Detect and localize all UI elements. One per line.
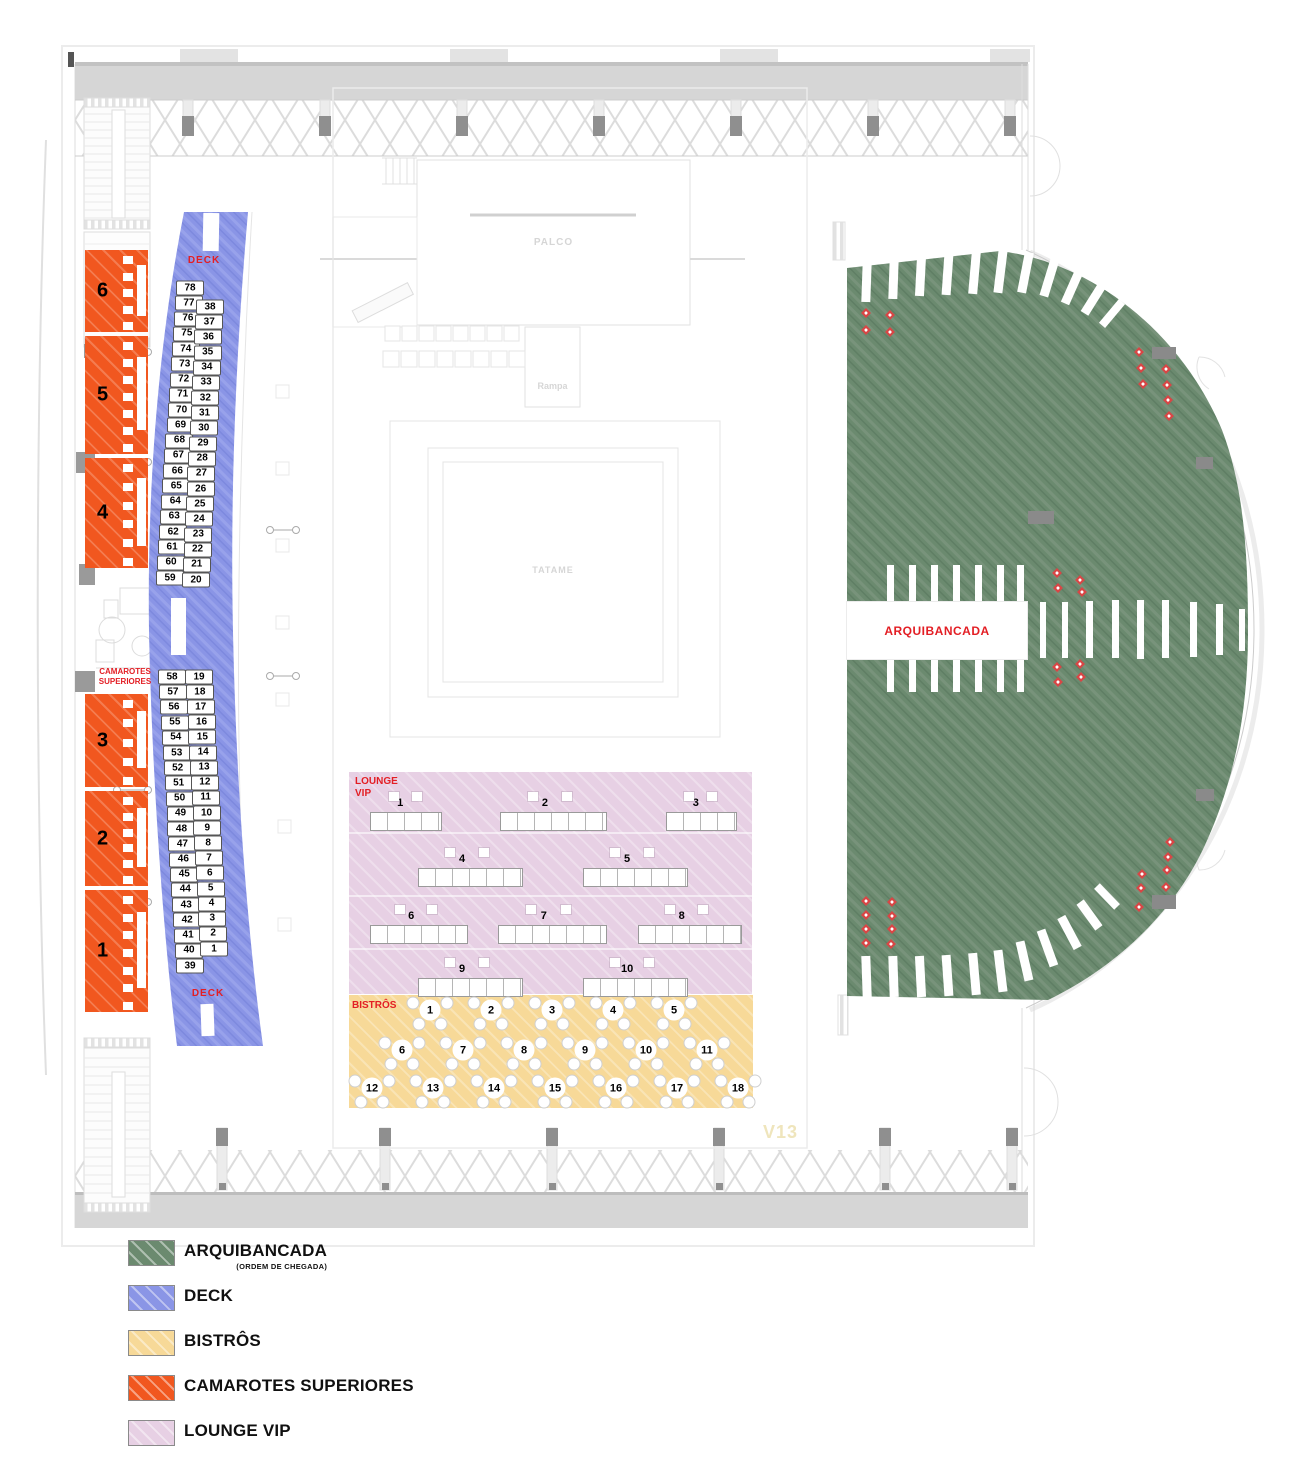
lounge-chair-square (528, 792, 538, 801)
legend-item-camarotes: CAMAROTES SUPERIORES (128, 1375, 558, 1401)
deck-seat-55: 55 (161, 715, 189, 730)
window-square (123, 393, 133, 401)
legend-label: DECK (184, 1285, 233, 1307)
chair-icon (624, 997, 637, 1010)
window-square (123, 931, 133, 939)
chair-icon (444, 1075, 457, 1088)
stair-stripe (861, 262, 871, 302)
chair-icon (538, 1096, 551, 1109)
bistros-label: BISTRÔS (352, 1000, 396, 1011)
deck-seat-41: 41 (174, 928, 202, 943)
outer-wall-curve (38, 140, 46, 1075)
deck-seat-78: 78 (176, 281, 204, 296)
legend-text: LOUNGE VIP (184, 1420, 291, 1442)
chair-icon (657, 1018, 670, 1031)
chair-icon (627, 1075, 640, 1088)
bistro-table-number: 8 (514, 1040, 535, 1061)
chair-icon (385, 1058, 398, 1071)
lounge-chair-square (395, 905, 405, 914)
deck-seat-18: 18 (186, 685, 214, 700)
deck-seat-29: 29 (189, 436, 217, 451)
balcony-rect (137, 357, 146, 430)
venue-floor-plan: ARQUIBANCADA 787776757473727170696867666… (0, 0, 1290, 1479)
chair-icon (718, 1037, 731, 1050)
legend-swatch-bistros (128, 1330, 175, 1356)
chair-icon (657, 1037, 670, 1050)
window-square (123, 1002, 133, 1010)
chair-icon (468, 1058, 481, 1071)
window-square (123, 739, 133, 747)
legend-item-deck: DECK (128, 1285, 558, 1311)
window-square (123, 967, 133, 975)
legend-text: ARQUIBANCADA(ORDEM DE CHEGADA) (184, 1240, 327, 1271)
window-square (123, 256, 133, 264)
deck-seat-38: 38 (196, 300, 224, 315)
deck-seat-16: 16 (188, 715, 216, 730)
deck-seat-27: 27 (187, 466, 215, 481)
bistro-table-number: 12 (362, 1078, 383, 1099)
chair-icon (407, 1058, 420, 1071)
chair-icon (712, 1058, 725, 1071)
stair-stripe (1216, 604, 1223, 655)
bistro-table-number: 6 (392, 1040, 413, 1061)
chair-icon (654, 1075, 667, 1088)
legend-label: LOUNGE VIP (184, 1420, 291, 1442)
lounge-vip-label: LOUNGEVIP (355, 776, 398, 799)
chair-icon (596, 1018, 609, 1031)
stair-stripe (888, 259, 898, 299)
window-square (123, 306, 133, 314)
chair-icon (505, 1075, 518, 1088)
chair-icon (383, 1075, 396, 1088)
deck-seat-52: 52 (164, 761, 192, 776)
chair-icon (749, 1075, 762, 1088)
window-square (123, 444, 133, 452)
bistro-table-number: 16 (606, 1078, 627, 1099)
legend-label: ARQUIBANCADA (184, 1240, 327, 1262)
legend-text: DECK (184, 1285, 233, 1307)
lounge-row-separator (349, 895, 752, 897)
lounge-chair-square (479, 958, 489, 967)
deck-seat-61: 61 (158, 540, 186, 555)
lounge-chair-square (561, 905, 571, 914)
chair-icon (377, 1096, 390, 1109)
bistro-table-number: 2 (481, 1000, 502, 1021)
deck-seat-28: 28 (188, 451, 216, 466)
faint-squares (276, 385, 291, 931)
stair-stripe (1239, 609, 1245, 651)
deck-seat-15: 15 (188, 730, 216, 745)
stair-stripe (997, 565, 1004, 602)
deck-seat-10: 10 (193, 806, 221, 821)
chair-icon (721, 1096, 734, 1109)
lounge-table-number: 7 (535, 910, 553, 922)
stair-stripe (997, 659, 1004, 692)
stair-stripe (975, 659, 982, 692)
lounge-table-9 (418, 978, 523, 997)
chair-icon (618, 1018, 631, 1031)
deck-seat-36: 36 (194, 330, 222, 345)
deck-seat-6: 6 (196, 866, 224, 881)
chair-icon (435, 1018, 448, 1031)
chair-icon (690, 1058, 703, 1071)
stair-stripe (953, 659, 960, 692)
deck-seat-4: 4 (198, 896, 226, 911)
deck-seat-33: 33 (192, 375, 220, 390)
chair-icon (413, 1037, 426, 1050)
chair-icon (446, 1058, 459, 1071)
stair-stripe (1062, 602, 1068, 658)
chair-icon (593, 1075, 606, 1088)
bistro-table-number: 18 (728, 1078, 749, 1099)
window-square (123, 914, 133, 922)
deck-seat-14: 14 (189, 745, 217, 760)
deck-seat-1: 1 (200, 942, 228, 957)
balcony-rect (137, 808, 146, 867)
deck-seat-43: 43 (172, 898, 200, 913)
balcony-rect (137, 265, 146, 316)
camarote-number: 3 (97, 729, 108, 752)
chair-icon (355, 1096, 368, 1109)
balcony-rect (137, 478, 146, 546)
chair-icon (501, 1037, 514, 1050)
bistro-table-number: 10 (636, 1040, 657, 1061)
chair-icon (379, 1037, 392, 1050)
legend-item-bistros: BISTRÔS (128, 1330, 558, 1356)
deck-seat-53: 53 (163, 746, 191, 761)
stairwell-bottom (84, 1038, 150, 1212)
deck-seat-63: 63 (160, 509, 188, 524)
window-square (123, 896, 133, 904)
chair-icon (651, 1058, 664, 1071)
chair-icon (441, 997, 454, 1010)
stair-stripe (1137, 600, 1144, 659)
deck-seat-17: 17 (187, 700, 215, 715)
chair-icon (535, 1018, 548, 1031)
chair-icon (568, 1058, 581, 1071)
stair-stripe (887, 659, 894, 692)
palco-label: PALCO (417, 160, 690, 325)
lounge-chair-square (707, 792, 717, 801)
chair-icon (596, 1037, 609, 1050)
legend-label: BISTRÔS (184, 1330, 261, 1352)
deck-seat-2: 2 (199, 926, 227, 941)
window-square (123, 844, 133, 852)
chair-icon (496, 1018, 509, 1031)
window-square (123, 410, 133, 418)
window-square (123, 483, 133, 491)
deck-seat-21: 21 (183, 557, 211, 572)
lounge-table-5 (583, 868, 688, 887)
deck-seat-54: 54 (162, 730, 190, 745)
deck-seat-31: 31 (191, 406, 219, 421)
deck-seat-57: 57 (159, 685, 187, 700)
lounge-chair-square (644, 958, 654, 967)
version-watermark: V13 (763, 1122, 798, 1143)
deck-label-top: DECK (176, 255, 232, 266)
deck-seat-60: 60 (157, 555, 185, 570)
stair-stripe (953, 565, 960, 602)
camarote-box-3: 3 (85, 694, 148, 787)
lounge-table-10 (583, 978, 688, 997)
chair-icon (688, 1075, 701, 1088)
stair-stripe (909, 659, 916, 692)
chair-icon (685, 997, 698, 1010)
chair-icon (563, 997, 576, 1010)
chair-icon (590, 1058, 603, 1071)
deck-seat-11: 11 (192, 790, 220, 805)
lounge-table-number: 4 (453, 853, 471, 865)
legend-swatch-deck (128, 1285, 175, 1311)
bistro-table-number: 15 (545, 1078, 566, 1099)
tatame-structure (390, 421, 720, 737)
chair-icon (529, 1058, 542, 1071)
deck-seat-46: 46 (169, 852, 197, 867)
lounge-chair-square (412, 792, 422, 801)
deck-seat-44: 44 (171, 882, 199, 897)
deck-seat-9: 9 (193, 821, 221, 836)
legend-label: CAMAROTES SUPERIORES (184, 1375, 414, 1397)
window-square (123, 719, 133, 727)
chair-icon (529, 997, 542, 1010)
bistro-table-number: 11 (697, 1040, 718, 1061)
lounge-table-1 (370, 812, 442, 831)
window-square (123, 520, 133, 528)
lounge-table-number: 9 (453, 963, 471, 975)
lounge-chair-square (610, 848, 620, 857)
bistro-table-number: 9 (575, 1040, 596, 1061)
deck-seat-32: 32 (191, 391, 219, 406)
lounge-table-7 (498, 925, 607, 944)
lounge-chair-square (562, 792, 572, 801)
chair-icon (679, 1018, 692, 1031)
machinery-sketch (96, 588, 156, 668)
stair-stripe (1017, 659, 1024, 692)
chair-icon (535, 1037, 548, 1050)
window-square (123, 777, 133, 785)
camarote-number: 5 (97, 384, 108, 407)
chair-icon (623, 1037, 636, 1050)
window-square (123, 376, 133, 384)
window-square (123, 427, 133, 435)
deck-seat-26: 26 (187, 482, 215, 497)
chair-icon (413, 1018, 426, 1031)
hatched-strip (833, 222, 845, 260)
window-square (123, 984, 133, 992)
deck-seat-39: 39 (176, 959, 204, 974)
chair-icon (438, 1096, 451, 1109)
chair-icon (416, 1096, 429, 1109)
top-truss (75, 100, 1028, 156)
chair-icon (684, 1037, 697, 1050)
stair-stripe (931, 659, 938, 692)
lounge-chair-square (427, 905, 437, 914)
deck-seat-59: 59 (156, 571, 184, 586)
deck-seat-40: 40 (175, 943, 203, 958)
stair-stripe (1162, 600, 1169, 658)
lounge-table-4 (418, 868, 523, 887)
top-roof-band (75, 62, 1028, 100)
balcony-rect (137, 711, 146, 769)
legend-text: CAMAROTES SUPERIORES (184, 1375, 414, 1397)
chair-icon (682, 1096, 695, 1109)
stair-stripe (931, 565, 938, 602)
window-square (123, 464, 133, 472)
deck-seat-13: 13 (190, 760, 218, 775)
deck-seat-8: 8 (194, 836, 222, 851)
window-square (123, 813, 133, 821)
chair-icon (562, 1037, 575, 1050)
chair-icon (599, 1096, 612, 1109)
legend-swatch-lounge (128, 1420, 175, 1446)
bottom-roof-band (75, 1192, 1028, 1228)
tatame-label: TATAME (443, 565, 663, 575)
bistro-table-number: 13 (423, 1078, 444, 1099)
chair-icon (440, 1037, 453, 1050)
window-square (123, 273, 133, 281)
window-square (123, 758, 133, 766)
chair-icon (474, 1037, 487, 1050)
window-square (123, 342, 133, 350)
deck-seat-48: 48 (167, 822, 195, 837)
window-square (123, 539, 133, 547)
chair-icon (557, 1018, 570, 1031)
arquibancada-band: ARQUIBANCADA (846, 601, 1028, 660)
stair-stripe (888, 956, 898, 997)
bistro-table-number: 7 (453, 1040, 474, 1061)
chair-icon (499, 1096, 512, 1109)
legend-swatch-camarotes (128, 1375, 175, 1401)
lounge-chair-square (698, 905, 708, 914)
deck-seat-3: 3 (198, 911, 226, 926)
legend-text: BISTRÔS (184, 1330, 261, 1352)
window-square (123, 860, 133, 868)
deck-seat-22: 22 (184, 542, 212, 557)
bistro-table-number: 1 (420, 1000, 441, 1021)
hatched-strip (838, 995, 848, 1035)
deck-seat-12: 12 (191, 775, 219, 790)
legend-item-arquibancada: ARQUIBANCADA(ORDEM DE CHEGADA) (128, 1240, 558, 1266)
chair-icon (474, 1018, 487, 1031)
window-square (123, 359, 133, 367)
deck-seat-30: 30 (190, 421, 218, 436)
window-square (123, 797, 133, 805)
deck-seat-20: 20 (182, 573, 210, 588)
stair-stripe (1017, 565, 1024, 602)
stair-stripe (975, 565, 982, 602)
bistro-table-number: 4 (603, 1000, 624, 1021)
legend-item-lounge: LOUNGE VIP (128, 1420, 558, 1446)
chair-icon (621, 1096, 634, 1109)
legend: ARQUIBANCADA(ORDEM DE CHEGADA)DECKBISTRÔ… (128, 1240, 558, 1465)
deck-seat-23: 23 (184, 527, 212, 542)
arquibancada-label: ARQUIBANCADA (884, 624, 989, 638)
camarote-number: 4 (97, 502, 108, 525)
chair-icon (349, 1075, 362, 1088)
lounge-table-number: 8 (673, 910, 691, 922)
deck-seat-47: 47 (168, 837, 196, 852)
rampa-label: Rampa (525, 381, 580, 391)
window-square (123, 322, 133, 330)
window-square (123, 558, 133, 566)
lounge-chair-square (610, 958, 620, 967)
camarote-box-4: 4 (85, 458, 148, 568)
lounge-row-separator (349, 832, 752, 834)
chair-icon (477, 1096, 490, 1109)
lounge-table-8 (638, 925, 742, 944)
stair-stripe (1040, 602, 1046, 658)
stair-stripe (1086, 601, 1093, 658)
lounge-chair-square (526, 905, 536, 914)
stair-stripe (1112, 600, 1119, 658)
chair-icon (532, 1075, 545, 1088)
chair-icon (507, 1058, 520, 1071)
chair-icon (715, 1075, 728, 1088)
chair-icon (502, 997, 515, 1010)
lounge-table-3 (666, 812, 737, 831)
lounge-table-number: 2 (536, 797, 554, 809)
deck-seat-35: 35 (194, 345, 222, 360)
deck-seat-24: 24 (185, 512, 213, 527)
lounge-chair-square (644, 848, 654, 857)
stair-stripe (861, 956, 871, 997)
lounge-table-number: 5 (618, 853, 636, 865)
window-square (123, 829, 133, 837)
deck-seat-34: 34 (193, 360, 221, 375)
camarote-number: 1 (97, 940, 108, 963)
camarote-box-5: 5 (85, 336, 148, 454)
deck-seat-5: 5 (197, 881, 225, 896)
lounge-row-separator (349, 948, 752, 950)
deck-seat-62: 62 (159, 525, 187, 540)
deck-seat-45: 45 (170, 867, 198, 882)
balcony-rect (137, 912, 146, 988)
chair-icon (660, 1096, 673, 1109)
chair-icon (743, 1096, 756, 1109)
chair-icon (629, 1058, 642, 1071)
camarote-box-2: 2 (85, 791, 148, 886)
stair-stripe (909, 565, 916, 602)
window-square (123, 700, 133, 708)
window-square (123, 876, 133, 884)
camarote-number: 6 (97, 280, 108, 303)
lounge-table-number: 10 (618, 963, 636, 975)
chair-icon (410, 1075, 423, 1088)
camarotes-superiores-label: CAMAROTESSUPERIORES (94, 667, 156, 688)
lounge-chair-square (479, 848, 489, 857)
chair-icon (651, 997, 664, 1010)
bistro-table-number: 17 (667, 1078, 688, 1099)
deck-label-bottom: DECK (180, 988, 236, 999)
camarote-number: 2 (97, 827, 108, 850)
deck-seat-37: 37 (195, 315, 223, 330)
chair-icon (407, 997, 420, 1010)
lounge-chair-square (445, 958, 455, 967)
deck-seat-7: 7 (195, 851, 223, 866)
chair-icon (471, 1075, 484, 1088)
window-square (123, 949, 133, 957)
deck-seat-25: 25 (186, 497, 214, 512)
deck-seat-50: 50 (166, 791, 194, 806)
lounge-table-6 (370, 925, 468, 944)
window-square (123, 502, 133, 510)
camarote-box-6: 6 (85, 250, 148, 332)
deck-seat-19: 19 (185, 670, 213, 685)
legend-sublabel: (ORDEM DE CHEGADA) (184, 1262, 327, 1271)
lounge-chair-square (445, 848, 455, 857)
lounge-chair-square (665, 905, 675, 914)
bistro-table-number: 5 (664, 1000, 685, 1021)
